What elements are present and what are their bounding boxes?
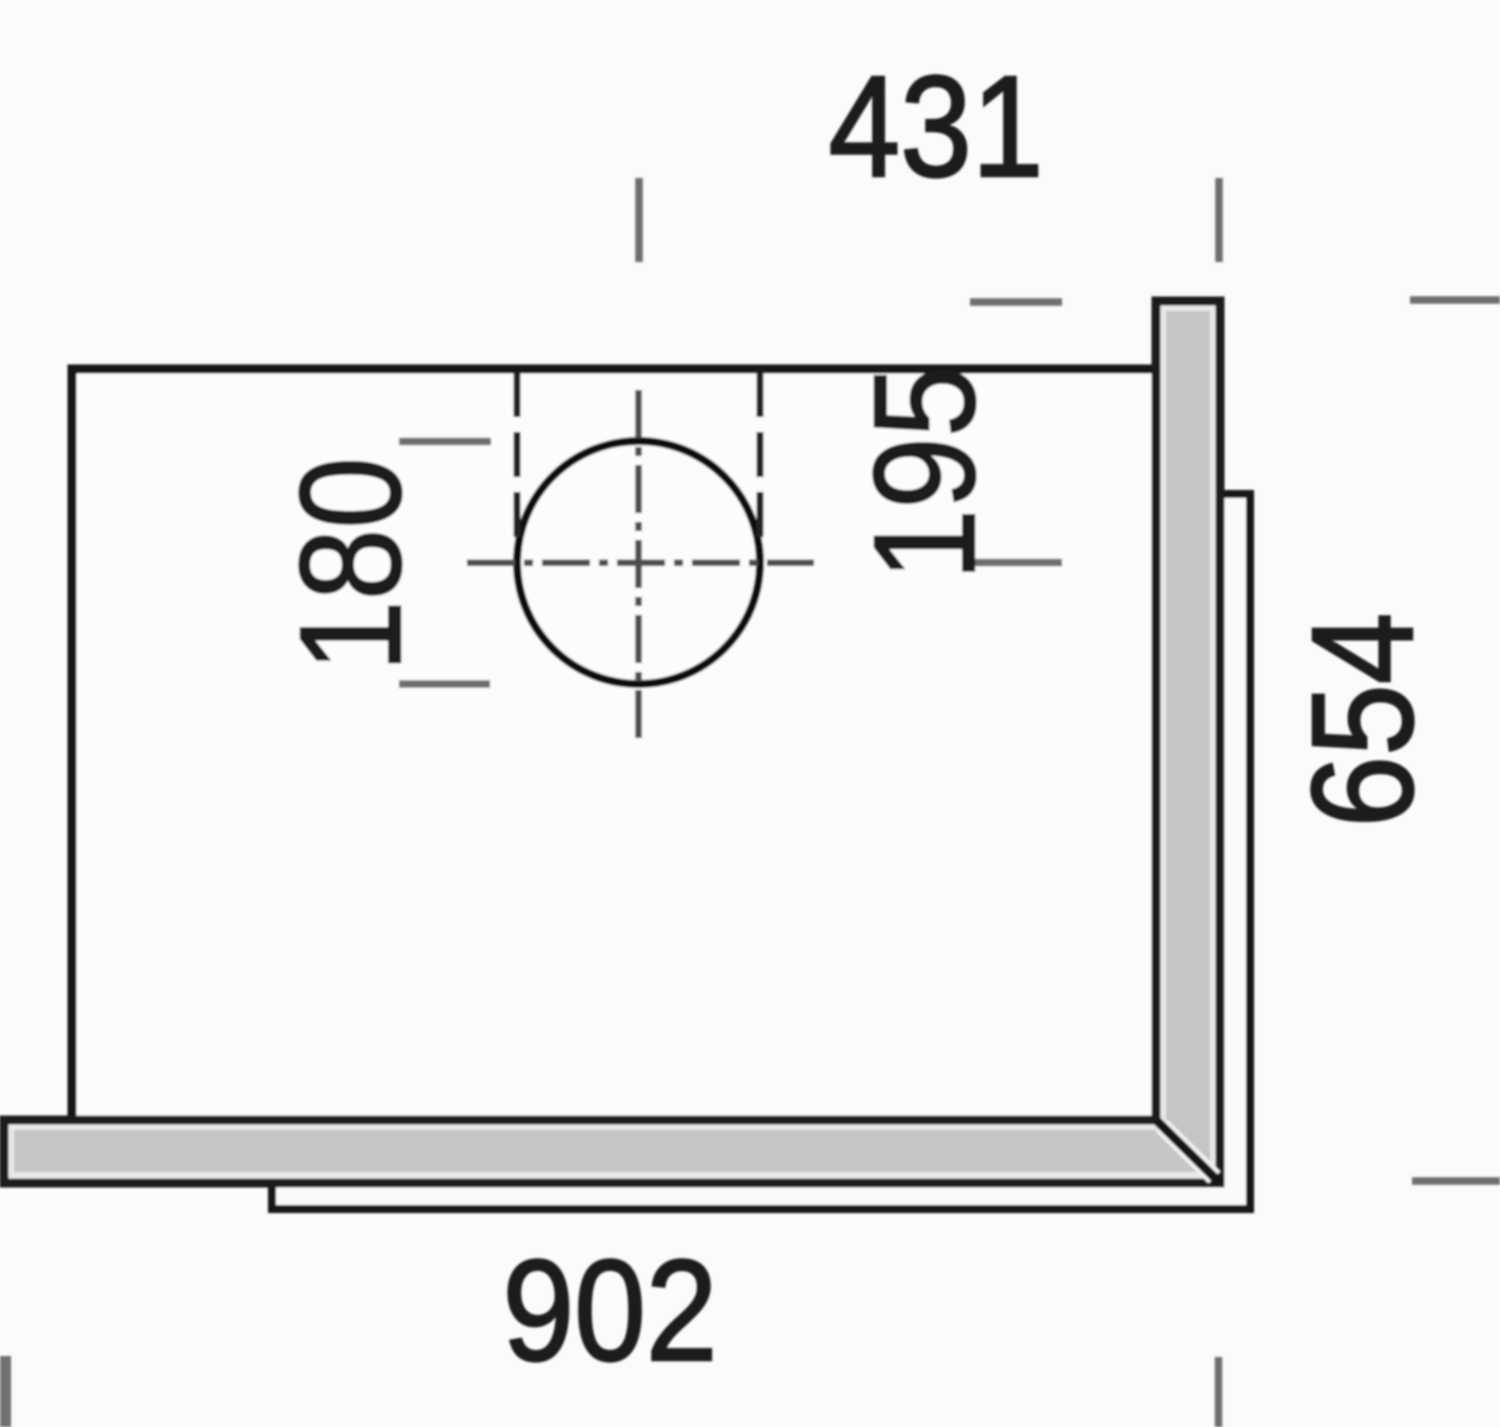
svg-text:180: 180: [269, 457, 430, 672]
svg-text:654: 654: [1281, 613, 1442, 828]
svg-text:902: 902: [503, 1229, 718, 1390]
svg-text:195: 195: [843, 366, 1004, 581]
svg-text:431: 431: [829, 45, 1044, 206]
